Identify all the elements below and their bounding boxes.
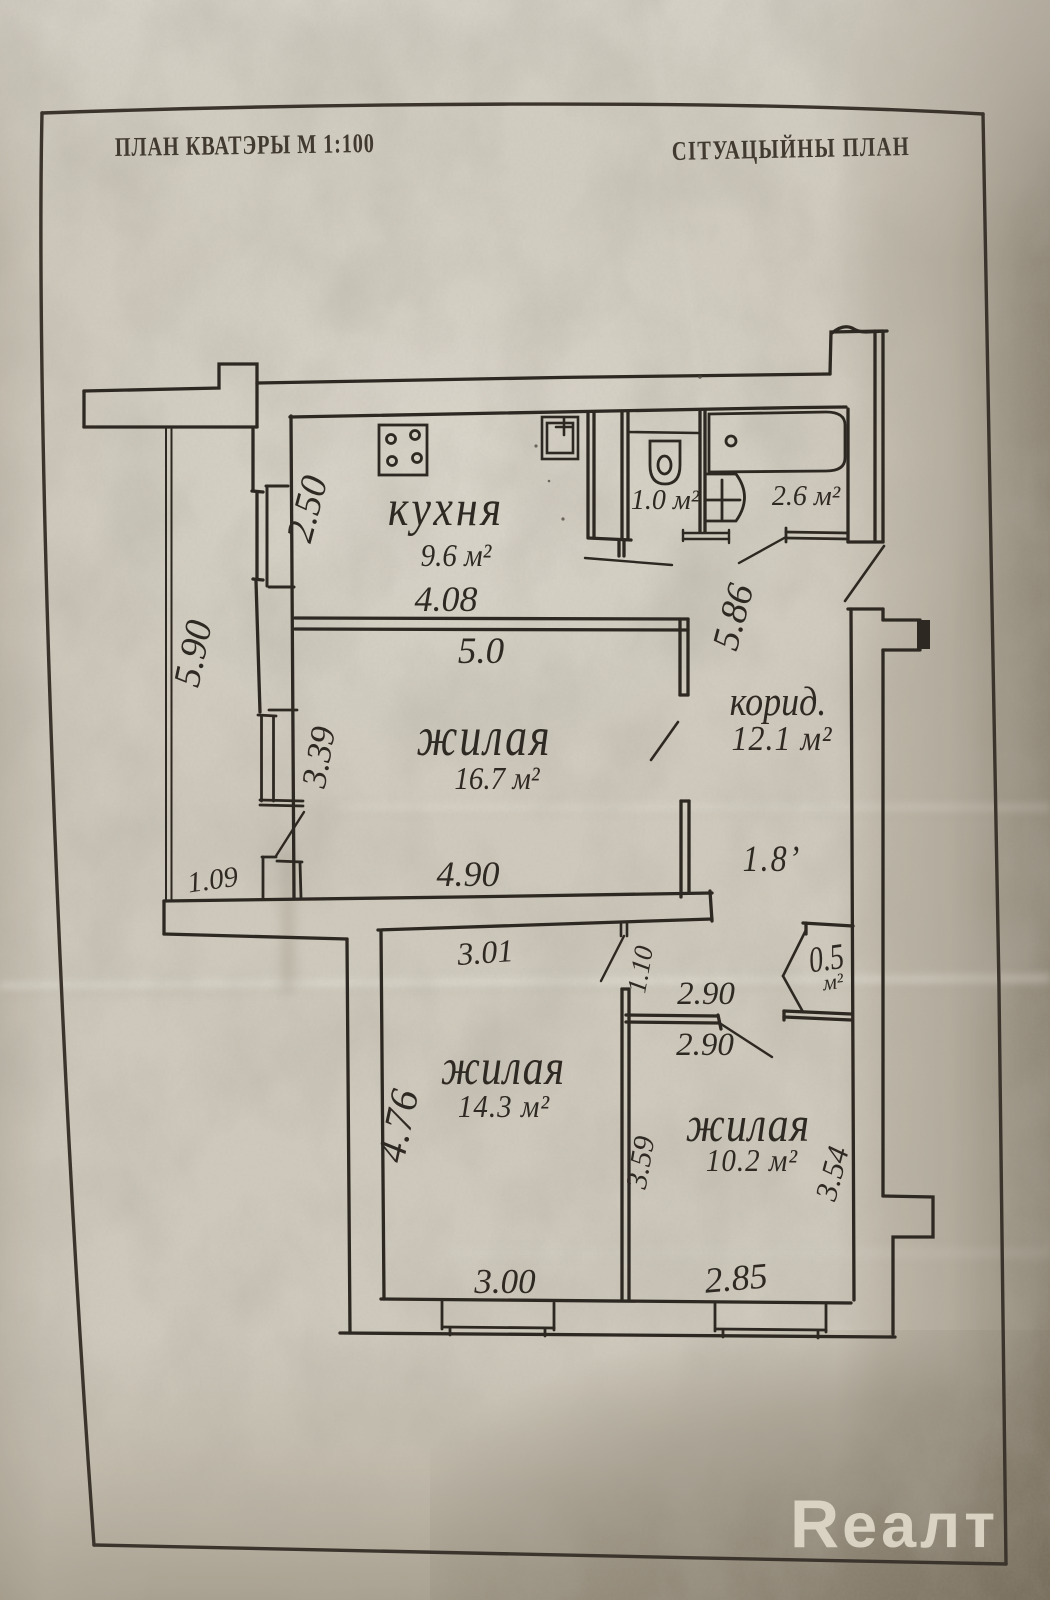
- svg-text:10.2 м²: 10.2 м²: [706, 1143, 798, 1178]
- svg-text:4.08: 4.08: [415, 579, 478, 619]
- svg-text:2.6 м²: 2.6 м²: [772, 481, 841, 512]
- svg-text:14.3 м²: 14.3 м²: [458, 1089, 550, 1124]
- svg-text:16.7 м²: 16.7 м²: [454, 761, 540, 797]
- svg-text:5.86: 5.86: [705, 579, 763, 654]
- svg-text:5.90: 5.90: [166, 617, 221, 691]
- svg-text:жилая: жилая: [441, 1039, 565, 1096]
- svg-text:м²: м²: [820, 968, 845, 996]
- svg-text:1.10: 1.10: [621, 943, 659, 995]
- svg-text:3.01: 3.01: [455, 932, 514, 972]
- svg-text:2.85: 2.85: [703, 1255, 769, 1300]
- svg-text:3.39: 3.39: [294, 723, 343, 791]
- svg-text:3.00: 3.00: [473, 1262, 536, 1301]
- svg-text:3.59: 3.59: [620, 1134, 662, 1192]
- svg-text:1.8ʼ: 1.8ʼ: [743, 839, 802, 880]
- svg-text:3.54: 3.54: [808, 1143, 856, 1205]
- svg-text:9.6 м²: 9.6 м²: [421, 538, 492, 574]
- svg-text:1.09: 1.09: [185, 861, 240, 900]
- svg-text:Rеaлт: Rеaлт: [790, 1486, 999, 1562]
- svg-text:ПЛАН КВАТЭРЫ М 1:100: ПЛАН КВАТЭРЫ М 1:100: [115, 129, 375, 162]
- svg-text:кухня: кухня: [388, 481, 504, 536]
- svg-text:корид.: корид.: [730, 679, 827, 725]
- svg-text:12.1 м²: 12.1 м²: [731, 720, 832, 758]
- svg-text:жилая: жилая: [416, 706, 551, 767]
- svg-text:2.90: 2.90: [677, 976, 735, 1012]
- svg-text:4.76: 4.76: [368, 1084, 427, 1166]
- svg-text:1.0 м²: 1.0 м²: [631, 485, 700, 516]
- svg-text:4.90: 4.90: [437, 854, 500, 894]
- svg-text:СІТУАЦЫЙНЫ ПЛАН: СІТУАЦЫЙНЫ ПЛАН: [672, 132, 911, 166]
- svg-text:5.0: 5.0: [458, 631, 505, 672]
- svg-text:2.50: 2.50: [279, 471, 337, 546]
- svg-text:2.90: 2.90: [676, 1027, 734, 1063]
